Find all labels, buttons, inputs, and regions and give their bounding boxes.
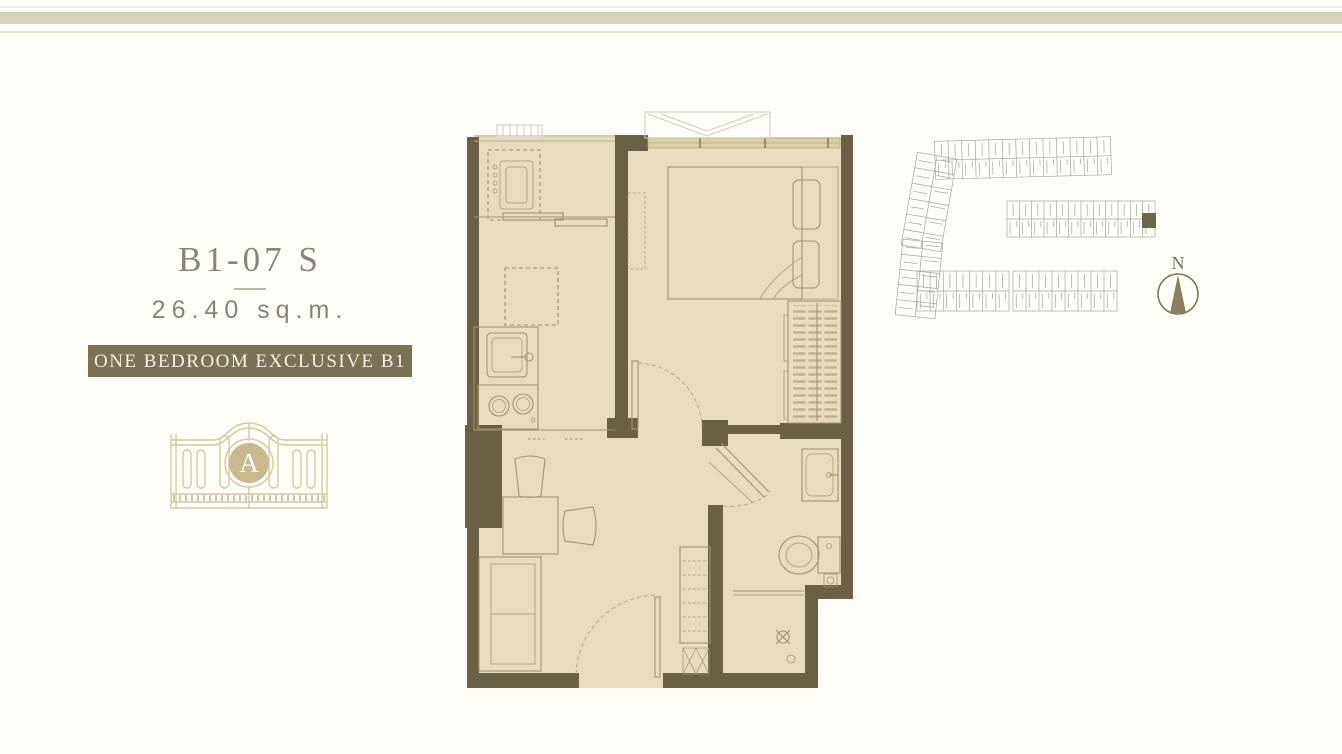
gate-logo: A bbox=[165, 416, 345, 512]
unit-area: 26.40 sq.m. bbox=[78, 296, 422, 325]
top-band bbox=[0, 12, 1342, 24]
monogram-letter: A bbox=[239, 448, 259, 478]
brochure-page: B1-07 S 26.40 sq.m. ONE BEDROOM EXCLUSIV… bbox=[0, 0, 1342, 754]
louver-vent bbox=[497, 125, 542, 136]
bedroom-window bbox=[648, 138, 840, 148]
top-hairline bbox=[0, 6, 1342, 8]
plan-notch bbox=[818, 599, 875, 705]
unit-code: B1-07 S bbox=[78, 240, 422, 280]
title-divider bbox=[234, 288, 266, 290]
compass-north-label: N bbox=[1172, 253, 1185, 273]
ac-condenser-unit bbox=[645, 112, 770, 138]
gate-monogram-medallion: A bbox=[225, 439, 273, 487]
compass: N bbox=[1150, 243, 1220, 333]
site-key-plan bbox=[895, 125, 1185, 320]
top-hairline-2 bbox=[0, 31, 1342, 33]
compass-needle bbox=[1170, 275, 1186, 313]
unit-location-marker bbox=[1142, 213, 1156, 228]
unit-title-block: B1-07 S 26.40 sq.m. bbox=[78, 240, 422, 325]
unit-type-badge: ONE BEDROOM EXCLUSIVE B1 bbox=[88, 345, 412, 377]
floor-plan bbox=[455, 105, 875, 705]
building-wings bbox=[895, 137, 1155, 319]
